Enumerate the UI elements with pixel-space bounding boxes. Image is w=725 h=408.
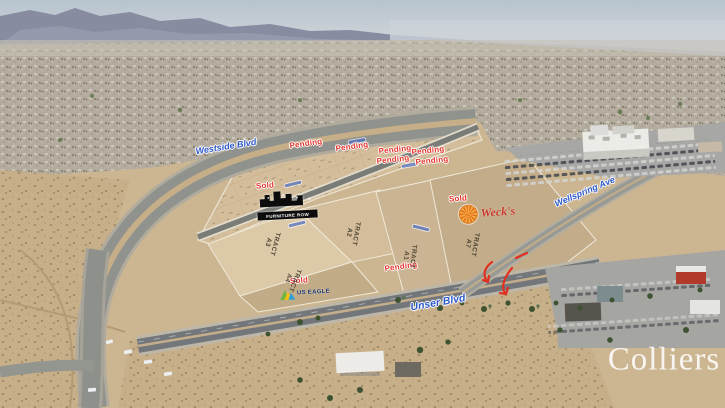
sunburst-icon <box>458 204 478 224</box>
aerial-photo: Westside Blvd Unser Blvd Wellspring Ave … <box>0 0 725 408</box>
sunburst-brand-script: Weck's <box>480 204 515 221</box>
us-eagle-wordmark: US EAGLE <box>297 289 330 297</box>
sunburst-brand-logo: Weck's <box>458 202 516 225</box>
fuel-canopy <box>336 351 385 373</box>
retail-building <box>658 127 695 142</box>
red-roof-building <box>676 272 706 284</box>
commercial-building <box>690 300 720 314</box>
furniture-row-skyline-icon <box>256 187 317 207</box>
us-eagle-icon <box>280 288 296 301</box>
colliers-watermark: Colliers <box>608 342 721 379</box>
commercial-building <box>676 266 706 272</box>
tract-label-a1: TRACT A1 <box>400 243 418 269</box>
store-building <box>395 362 421 377</box>
commercial-building <box>565 302 602 321</box>
sold-label: Sold <box>449 194 468 203</box>
furniture-row-logo: FURNITURE ROW <box>256 187 317 220</box>
retail-building <box>698 141 722 152</box>
